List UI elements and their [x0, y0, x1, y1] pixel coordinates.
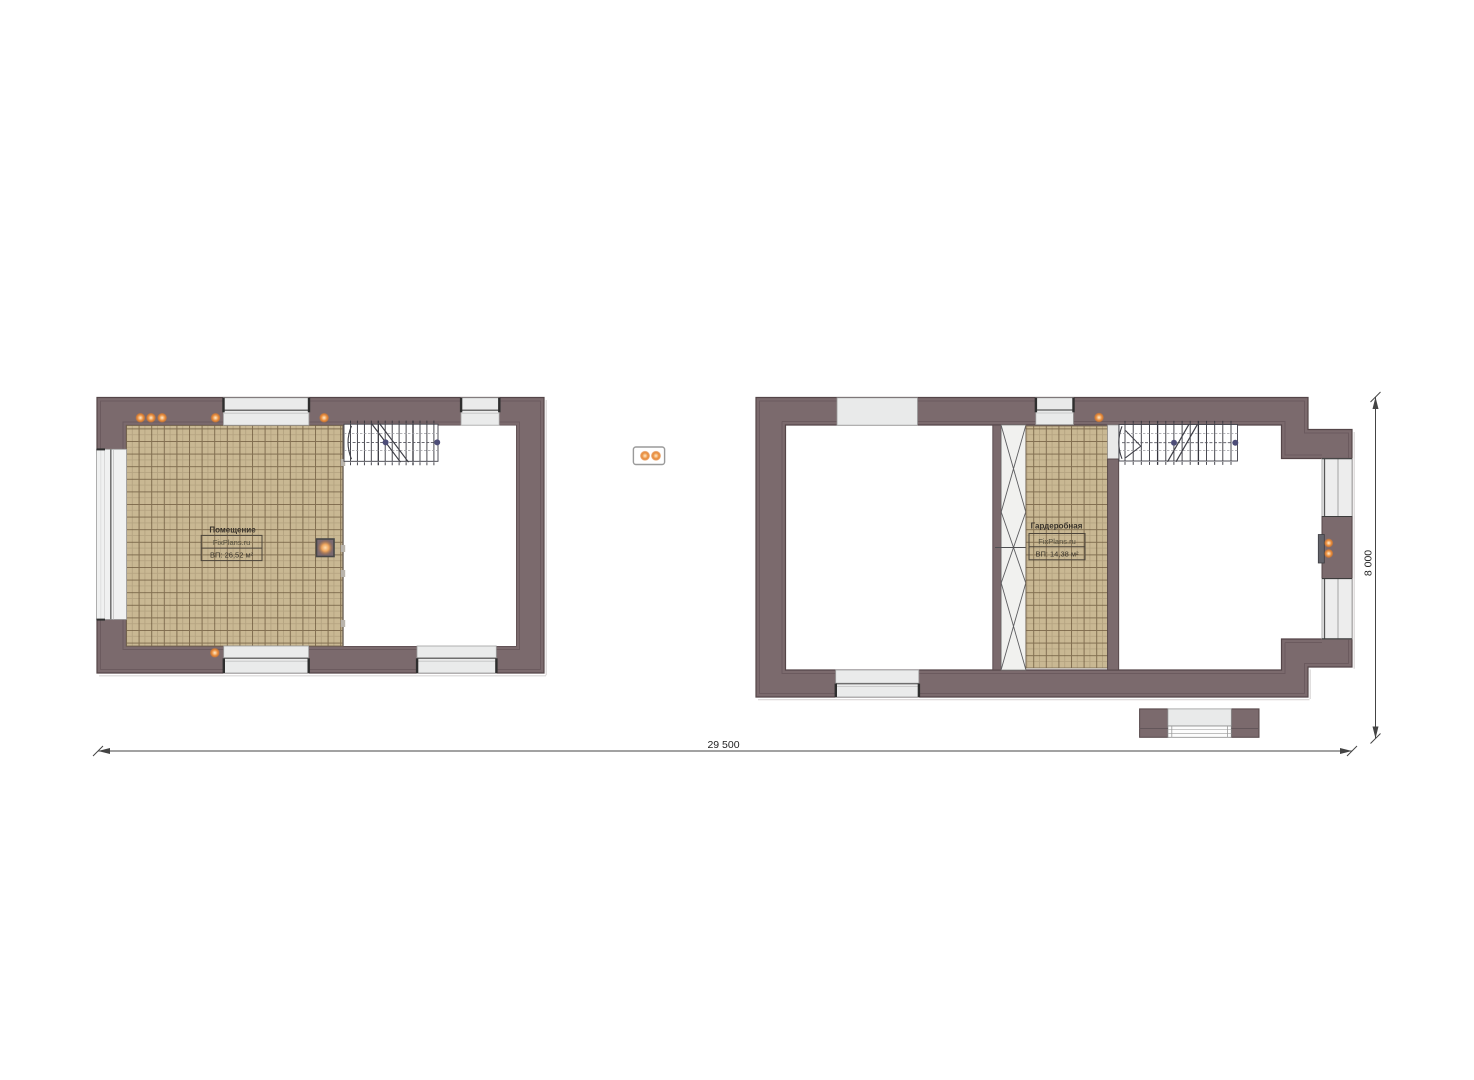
svg-text:FixPlans.ru: FixPlans.ru — [1038, 537, 1076, 546]
svg-text:29 500: 29 500 — [707, 739, 739, 751]
svg-text:FixPlans.ru: FixPlans.ru — [213, 538, 251, 547]
svg-text:Помещение: Помещение — [209, 526, 256, 535]
svg-text:ВП: 14,38 м²: ВП: 14,38 м² — [1035, 550, 1079, 559]
svg-text:ВП: 26,52 м²: ВП: 26,52 м² — [210, 551, 254, 560]
svg-text:8 000: 8 000 — [1363, 550, 1375, 576]
svg-text:Гардеробная: Гардеробная — [1031, 522, 1083, 531]
